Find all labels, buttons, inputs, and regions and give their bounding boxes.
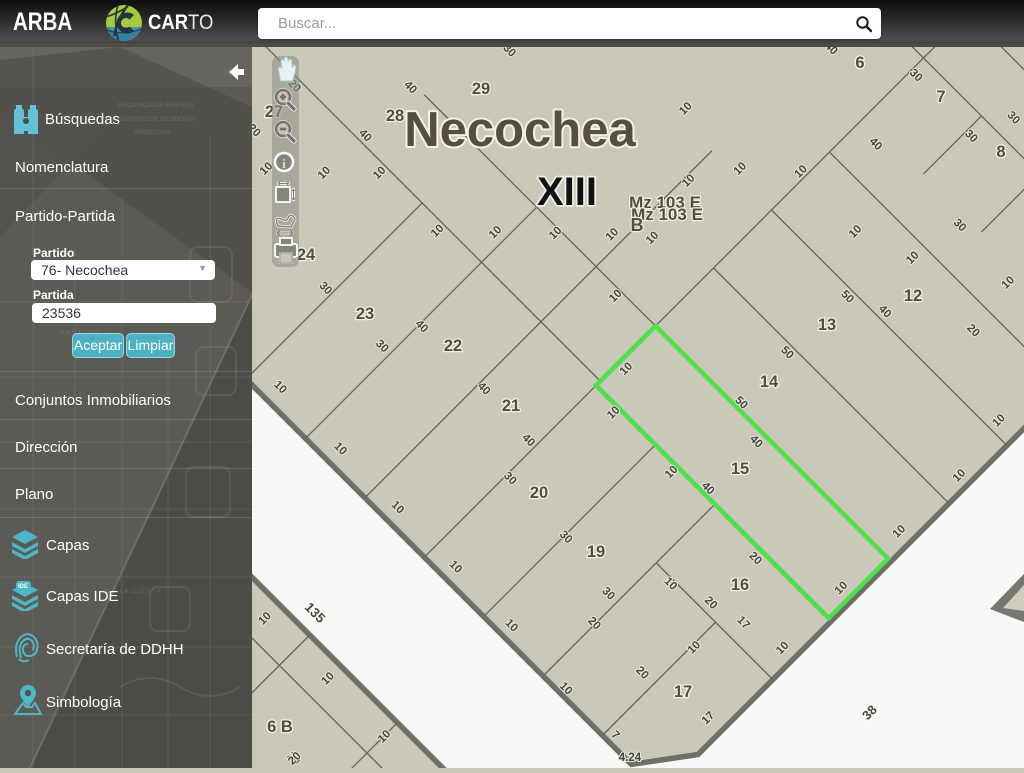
svg-text:12: 12	[904, 287, 922, 305]
svg-text:XIII: XIII	[537, 170, 597, 214]
svg-text:MINISTERIO DE ECONOMIA: MINISTERIO DE ECONOMIA	[110, 116, 197, 123]
svg-text:4.24: 4.24	[619, 752, 642, 764]
svg-text:21: 21	[502, 397, 520, 415]
svg-text:22: 22	[444, 337, 462, 355]
svg-text:IDE: IDE	[18, 584, 28, 590]
svg-text:19: 19	[587, 543, 605, 561]
svg-text:23: 23	[356, 305, 374, 323]
svg-text:17: 17	[674, 683, 692, 701]
svg-text:13: 13	[818, 316, 836, 334]
svg-text:8: 8	[996, 143, 1005, 161]
svg-text:PROVINCIA DE BUENOS: PROVINCIA DE BUENOS	[118, 102, 194, 109]
svg-text:6: 6	[855, 54, 864, 72]
svg-text:28: 28	[386, 107, 404, 125]
svg-text:24: 24	[297, 246, 316, 264]
svg-text:15: 15	[731, 460, 749, 478]
svg-text:29: 29	[472, 80, 490, 98]
svg-text:6 B: 6 B	[267, 718, 293, 736]
svg-text:i: i	[282, 156, 286, 171]
svg-text:Necochea: Necochea	[404, 103, 636, 157]
svg-text:B: B	[631, 215, 644, 235]
svg-text:20: 20	[530, 484, 548, 502]
svg-text:7: 7	[936, 88, 945, 106]
svg-text:14: 14	[760, 373, 779, 391]
svg-text:DIRECCION: DIRECCION	[134, 129, 171, 136]
svg-text:16: 16	[731, 576, 749, 594]
